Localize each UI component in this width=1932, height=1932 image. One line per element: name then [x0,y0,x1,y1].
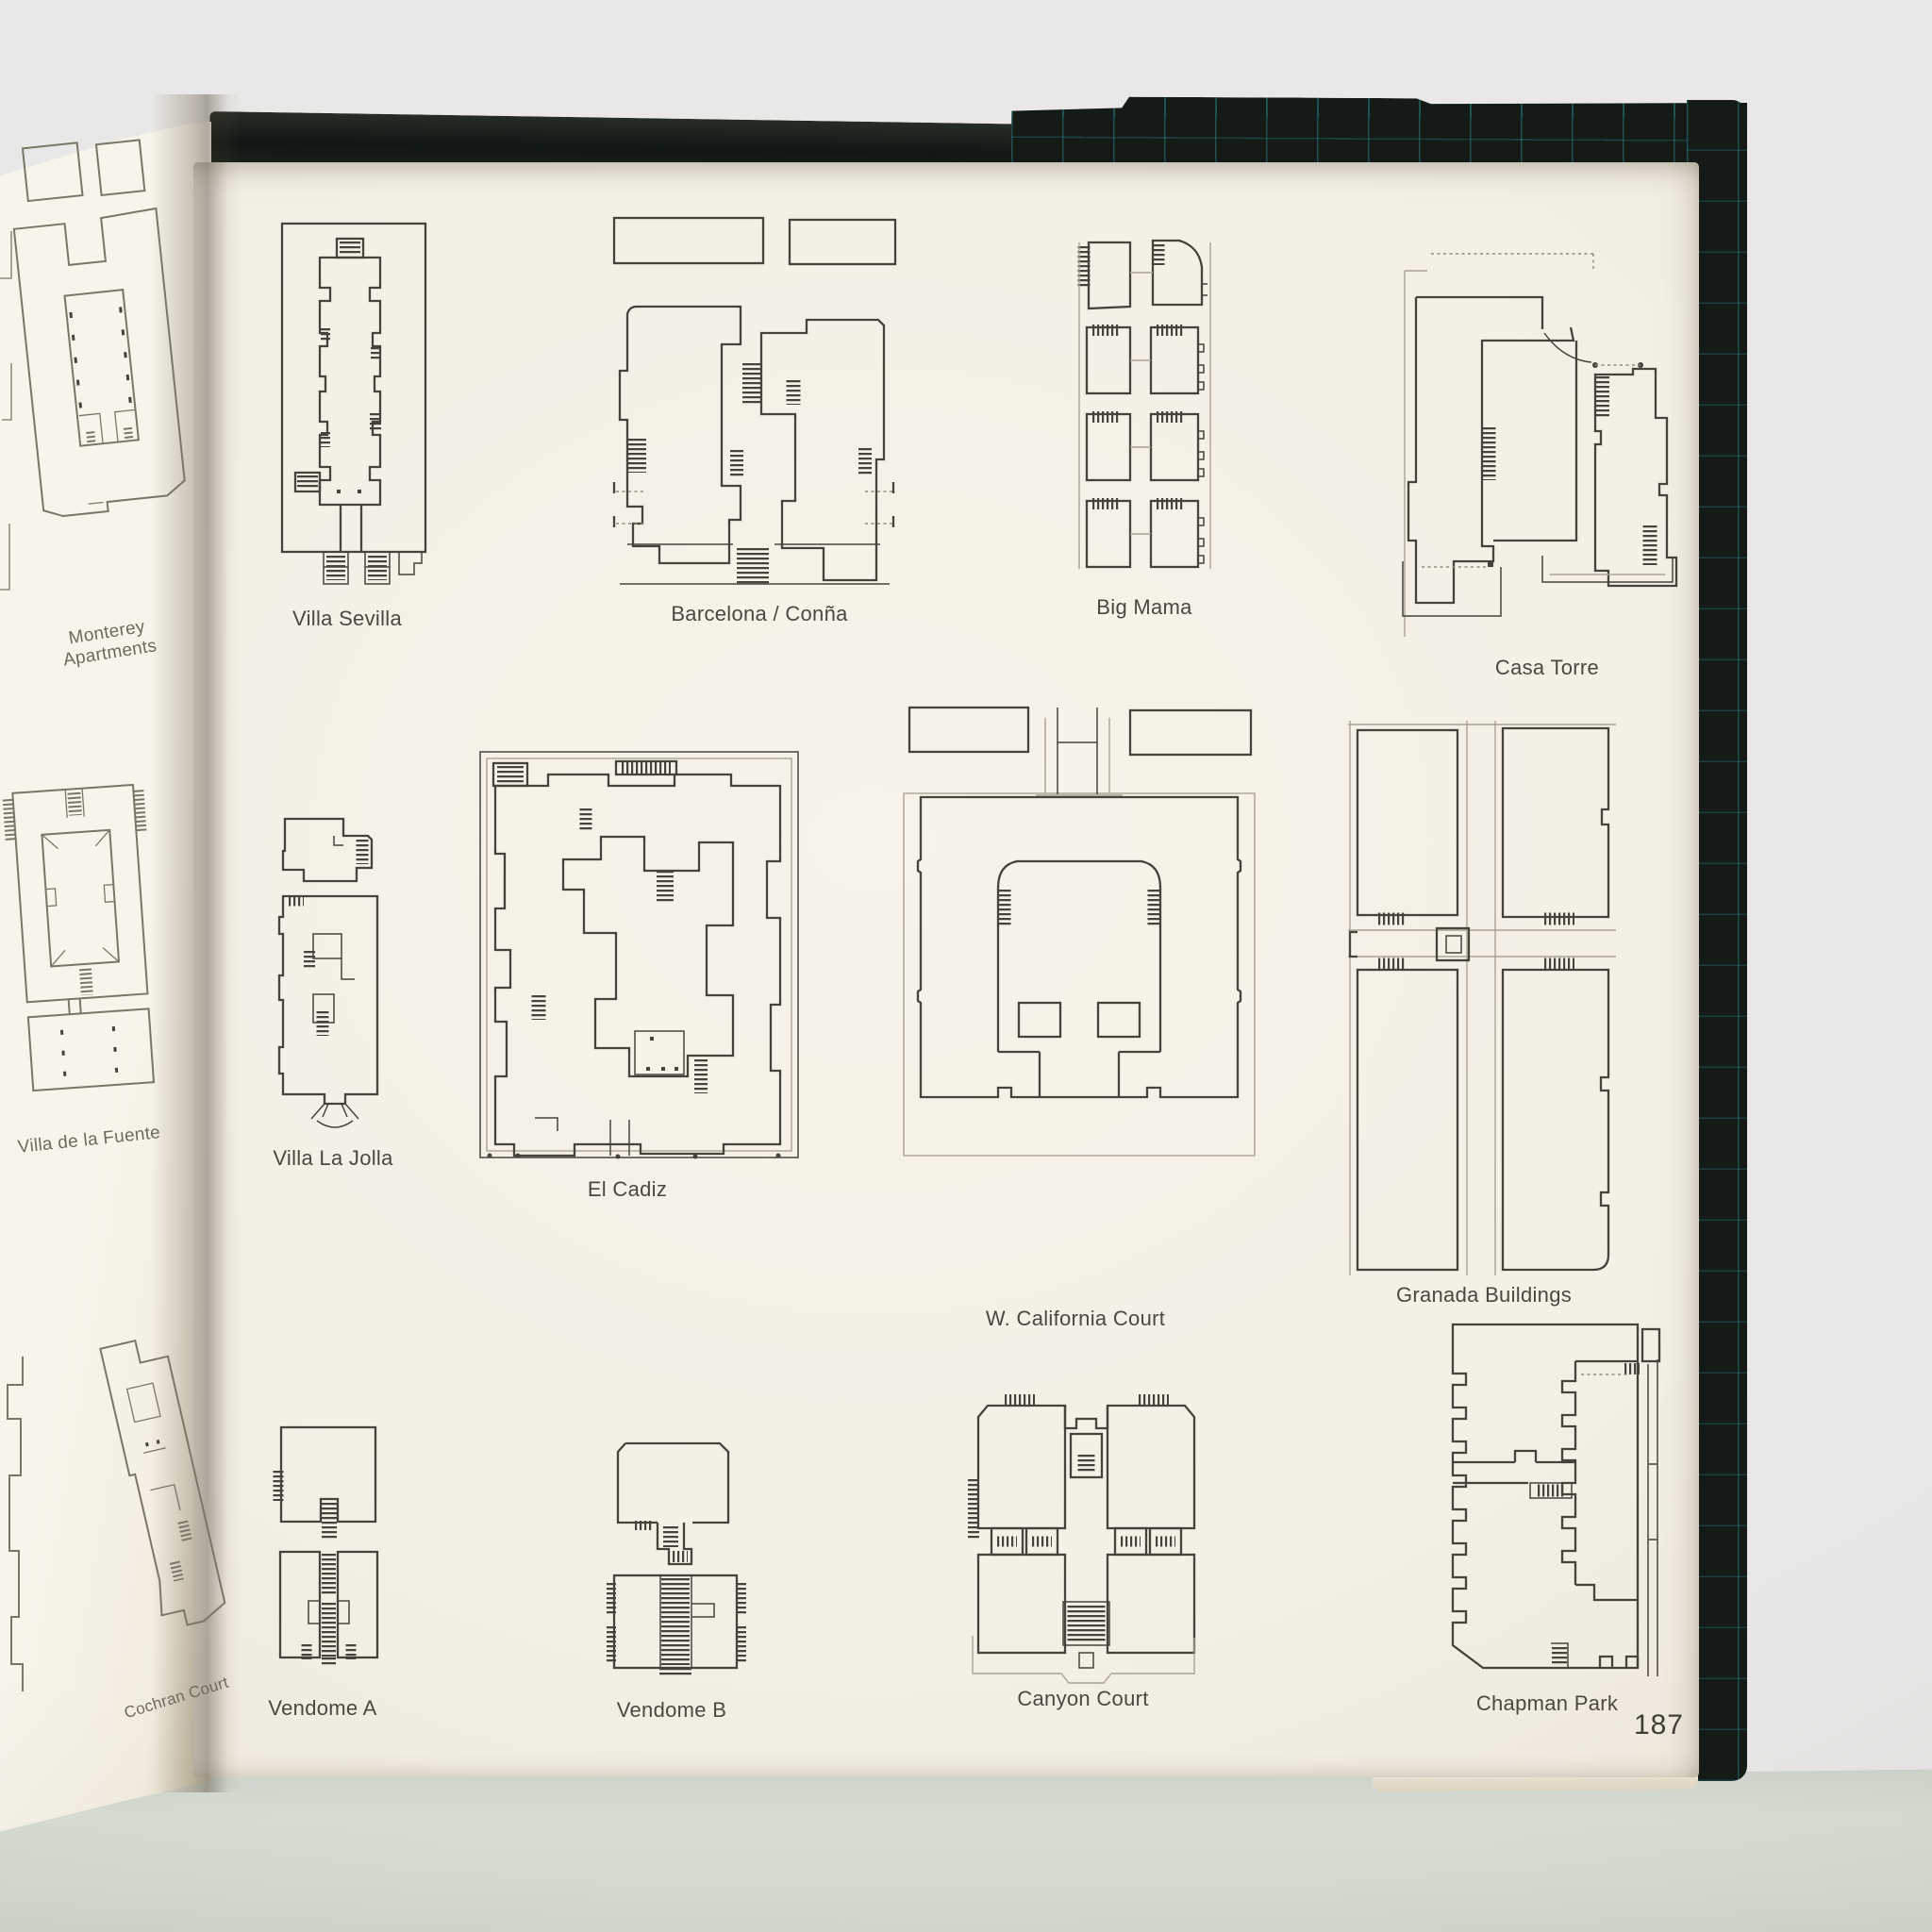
page-number: 187 [1608,1709,1684,1741]
figure-canyon-court [965,1387,1207,1679]
figure-label-villa-la-jolla: Villa La Jolla [239,1146,427,1170]
figure-villa-sevilla [278,220,429,597]
figure-label-el-cadiz: El Cadiz [533,1177,722,1201]
table-surface [0,1766,1932,1932]
figure-granada-buildings [1346,719,1620,1283]
figure-chapman-park [1424,1321,1665,1679]
floor-plan-vendome-a [275,1420,382,1668]
floor-plan-vendome-b [608,1432,745,1681]
figure-big-mama [1075,229,1214,578]
figure-label-villa-sevilla: Villa Sevilla [253,607,441,630]
floor-plan-villa-de-la-fuente [0,771,165,1101]
floor-plan-granada-buildings [1346,719,1620,1283]
figure-barcelona-conna [608,212,901,599]
figure-vendome-a [275,1420,382,1668]
floor-plan-canyon-court [965,1387,1207,1679]
figure-label-casa-torre: Casa Torre [1453,656,1641,679]
book-photo: Monterey Apartments Villa de la Fuente [0,0,1932,1932]
figure-villa-de-la-fuente [0,771,165,1101]
floor-plan-villa-sevilla [278,220,429,597]
figure-label-canyon-court: Canyon Court [989,1687,1177,1710]
floor-plan-casa-torre [1401,242,1679,662]
floor-plan-partial-top-left [0,222,13,665]
figure-el-cadiz [476,748,802,1165]
floor-plan-villa-la-jolla [275,813,393,1132]
floor-plan-big-mama [1075,229,1214,578]
figure-villa-la-jolla [275,813,393,1132]
figure-partial-plan-top-left [0,222,13,665]
figure-w-california-court [904,703,1255,1184]
figure-label-granada-buildings: Granada Buildings [1371,1283,1597,1307]
figure-vendome-b [608,1432,745,1681]
figure-label-vendome-a: Vendome A [228,1696,417,1720]
floor-plan-el-cadiz [476,748,802,1165]
figure-label-barcelona-conna: Barcelona / Conña [618,602,901,625]
floor-plan-chapman-park [1424,1321,1665,1679]
floor-plan-barcelona-conna [608,212,901,599]
figure-label-vendome-b: Vendome B [577,1698,766,1722]
figure-label-w-california-court: W. California Court [962,1307,1189,1330]
figure-partial-plan-bottom-left [0,1357,26,1691]
figure-casa-torre [1401,242,1679,662]
floor-plan-w-california-court [904,703,1255,1184]
figure-label-big-mama: Big Mama [1050,595,1239,619]
floor-plan-partial-bottom-left [0,1357,26,1691]
